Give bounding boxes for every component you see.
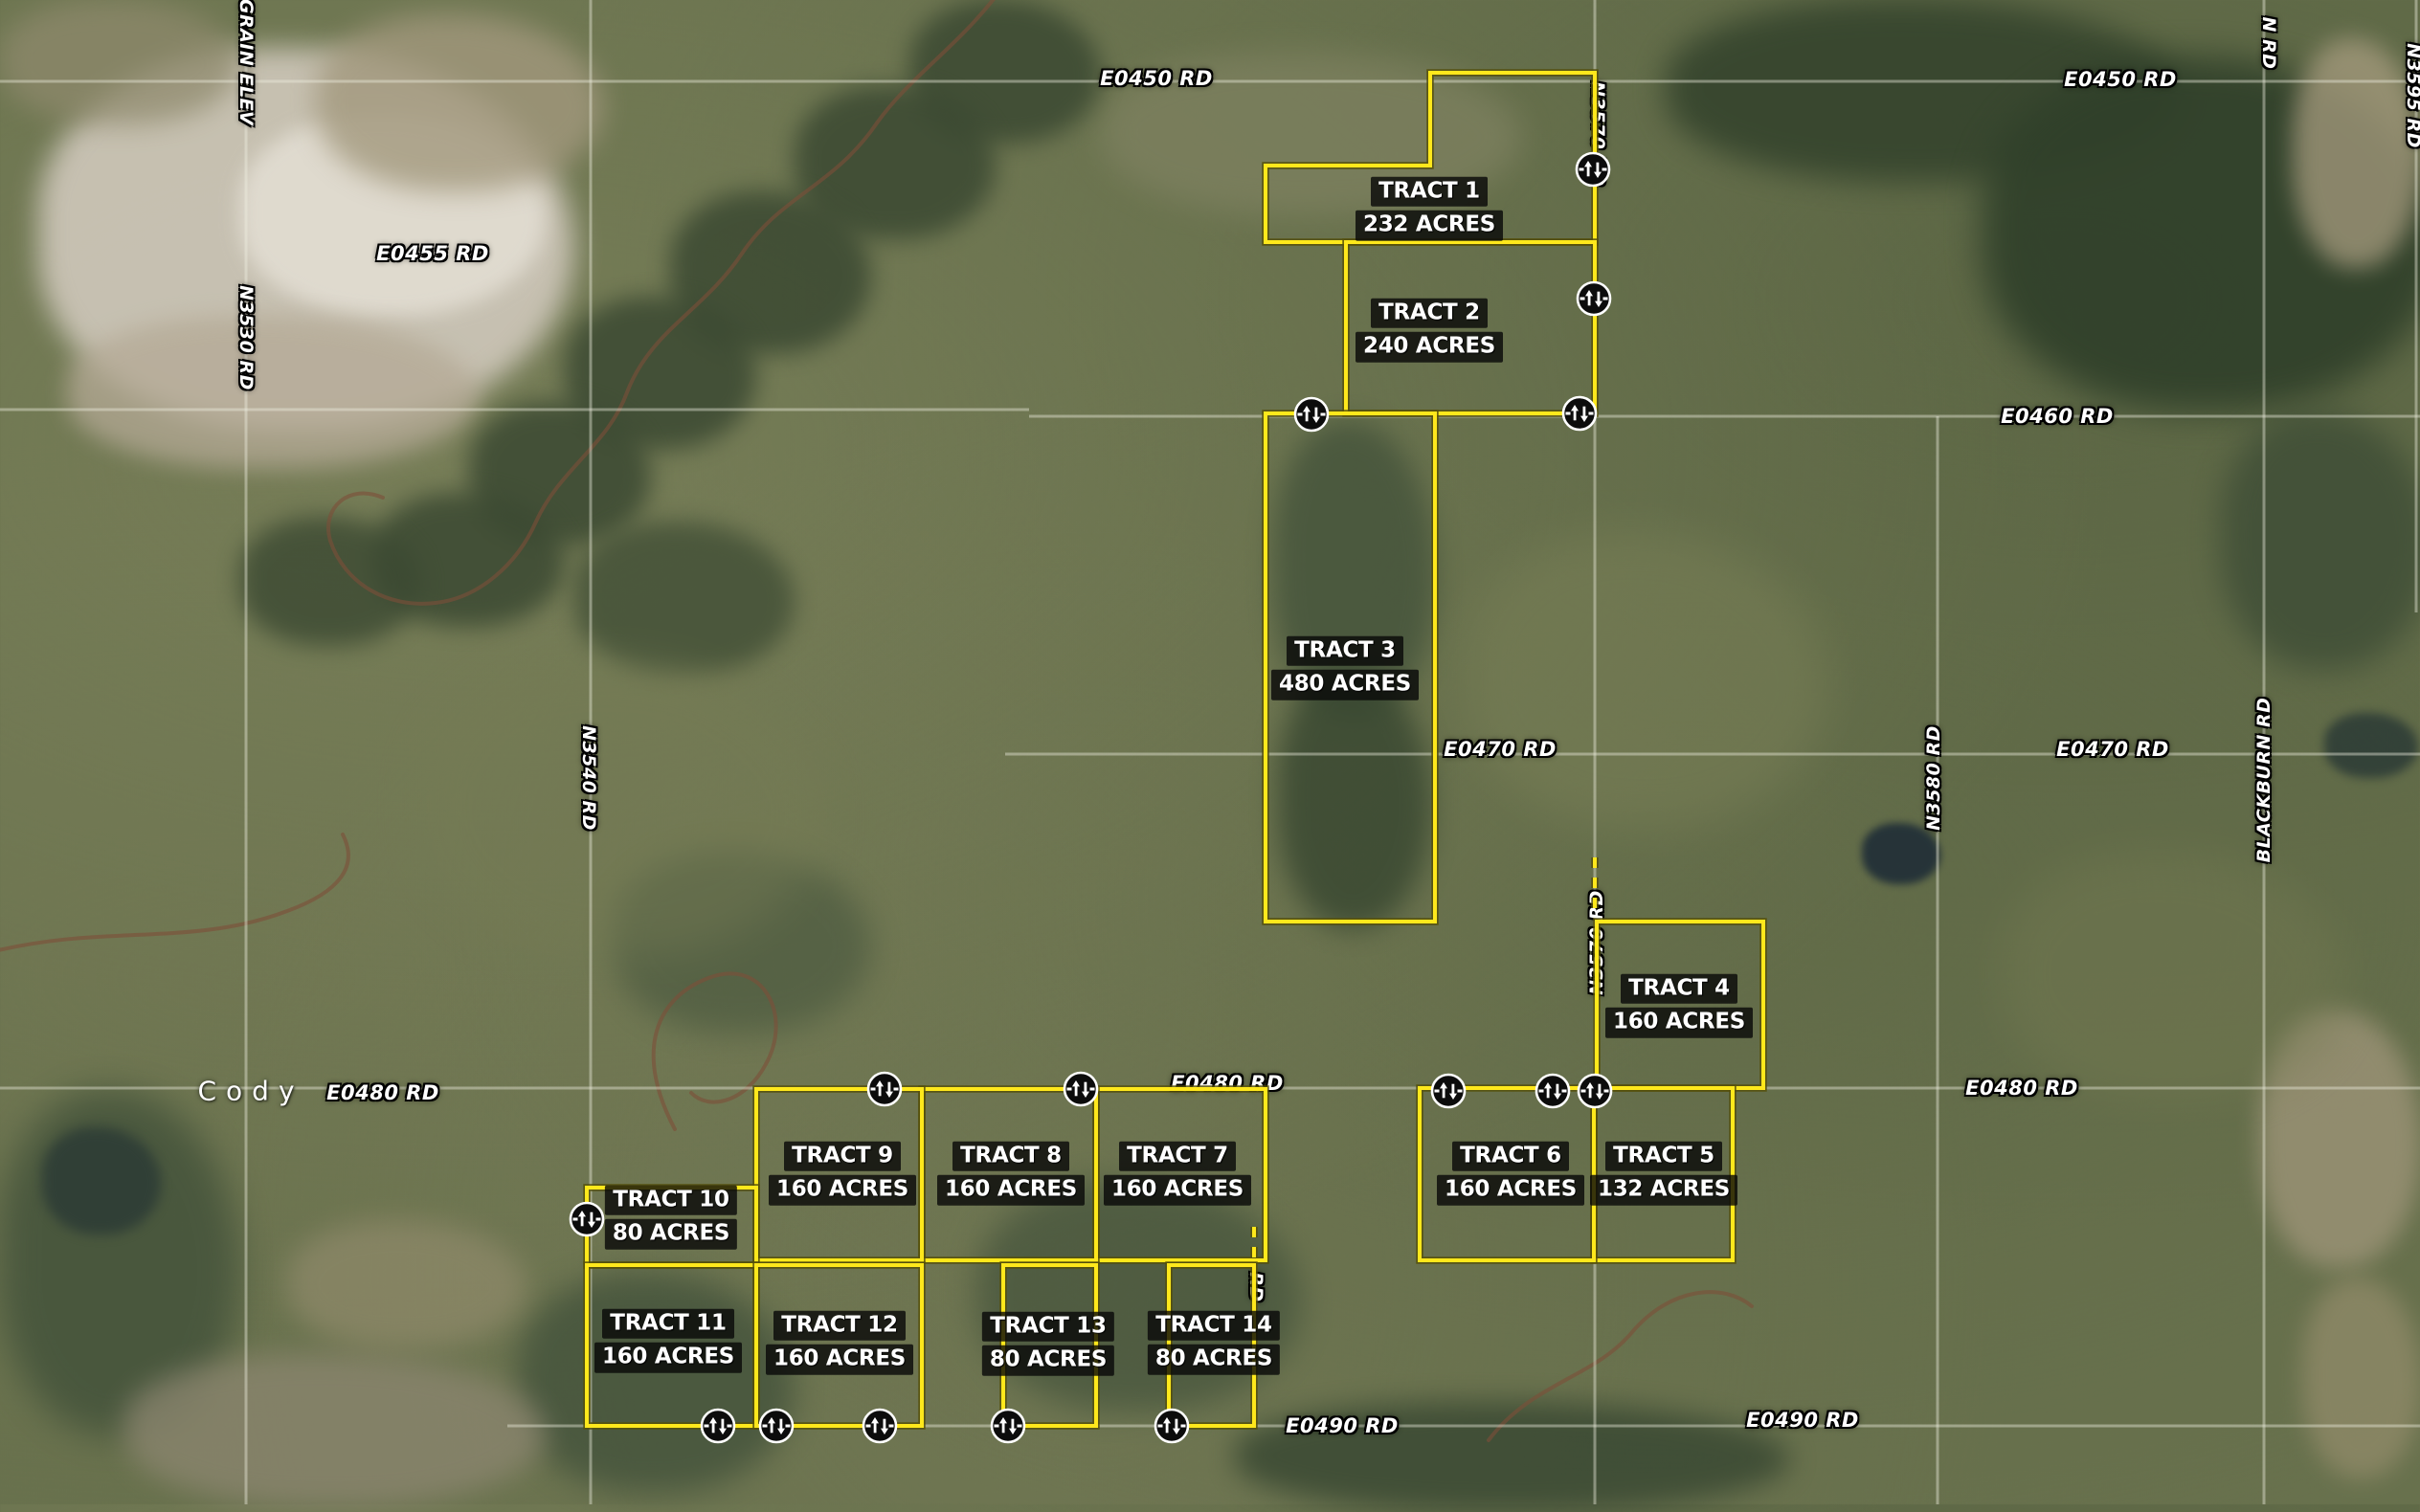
tract-label: TRACT 2240 ACRES <box>1356 299 1503 363</box>
tract-acres: 160 ACRES <box>1104 1175 1251 1205</box>
tract-label: TRACT 7160 ACRES <box>1104 1142 1251 1206</box>
tract-name: TRACT 7 <box>1119 1142 1236 1171</box>
tract-label: TRACT 1480 ACRES <box>1148 1311 1280 1375</box>
tract-label: TRACT 8160 ACRES <box>937 1142 1085 1206</box>
tract-label: TRACT 5132 ACRES <box>1590 1142 1737 1206</box>
tract-acres: 80 ACRES <box>1148 1345 1280 1374</box>
tract-name: TRACT 14 <box>1148 1311 1279 1341</box>
tract-acres: 240 ACRES <box>1356 332 1503 362</box>
tract-name: TRACT 13 <box>982 1312 1113 1342</box>
tract-name: TRACT 8 <box>952 1142 1069 1171</box>
tract-acres: 480 ACRES <box>1271 670 1419 700</box>
tract-label: TRACT 11160 ACRES <box>594 1309 742 1373</box>
tract-name: TRACT 10 <box>605 1186 736 1215</box>
tract-name: TRACT 5 <box>1605 1142 1722 1171</box>
tract-name: TRACT 6 <box>1452 1142 1569 1171</box>
tract-label: TRACT 4160 ACRES <box>1605 974 1753 1038</box>
tract-name: TRACT 12 <box>773 1311 905 1341</box>
tract-acres: 232 ACRES <box>1356 211 1503 240</box>
tract-acres: 160 ACRES <box>1437 1175 1584 1205</box>
tract-name: TRACT 2 <box>1371 299 1488 328</box>
tract-acres: 132 ACRES <box>1590 1175 1737 1205</box>
tract-name: TRACT 1 <box>1371 177 1488 207</box>
tract-acres: 160 ACRES <box>766 1345 913 1374</box>
tract-label: TRACT 1380 ACRES <box>982 1312 1114 1376</box>
tract-label: TRACT 3480 ACRES <box>1271 636 1419 700</box>
tract-acres: 160 ACRES <box>1605 1008 1753 1037</box>
tract-name: TRACT 4 <box>1621 974 1737 1004</box>
tract-label: TRACT 1080 ACRES <box>605 1186 737 1250</box>
tract-acres: 160 ACRES <box>937 1175 1085 1205</box>
tract-acres: 160 ACRES <box>594 1343 742 1372</box>
satellite-map: E0450 RDE0450 RDE0455 RDE0460 RDE0470 RD… <box>0 0 2420 1504</box>
tract-name: TRACT 9 <box>784 1142 901 1171</box>
tract-label: TRACT 1232 ACRES <box>1356 177 1503 241</box>
tract-label: TRACT 12160 ACRES <box>766 1311 913 1375</box>
tract-acres: 80 ACRES <box>982 1345 1114 1375</box>
tract-labels-layer: TRACT 1232 ACRESTRACT 2240 ACRESTRACT 34… <box>0 0 2420 1504</box>
tract-acres: 160 ACRES <box>769 1175 916 1205</box>
tract-name: TRACT 3 <box>1287 636 1403 666</box>
tract-label: TRACT 6160 ACRES <box>1437 1142 1584 1206</box>
tract-name: TRACT 11 <box>602 1309 733 1339</box>
tract-acres: 80 ACRES <box>605 1219 737 1249</box>
tract-label: TRACT 9160 ACRES <box>769 1142 916 1206</box>
